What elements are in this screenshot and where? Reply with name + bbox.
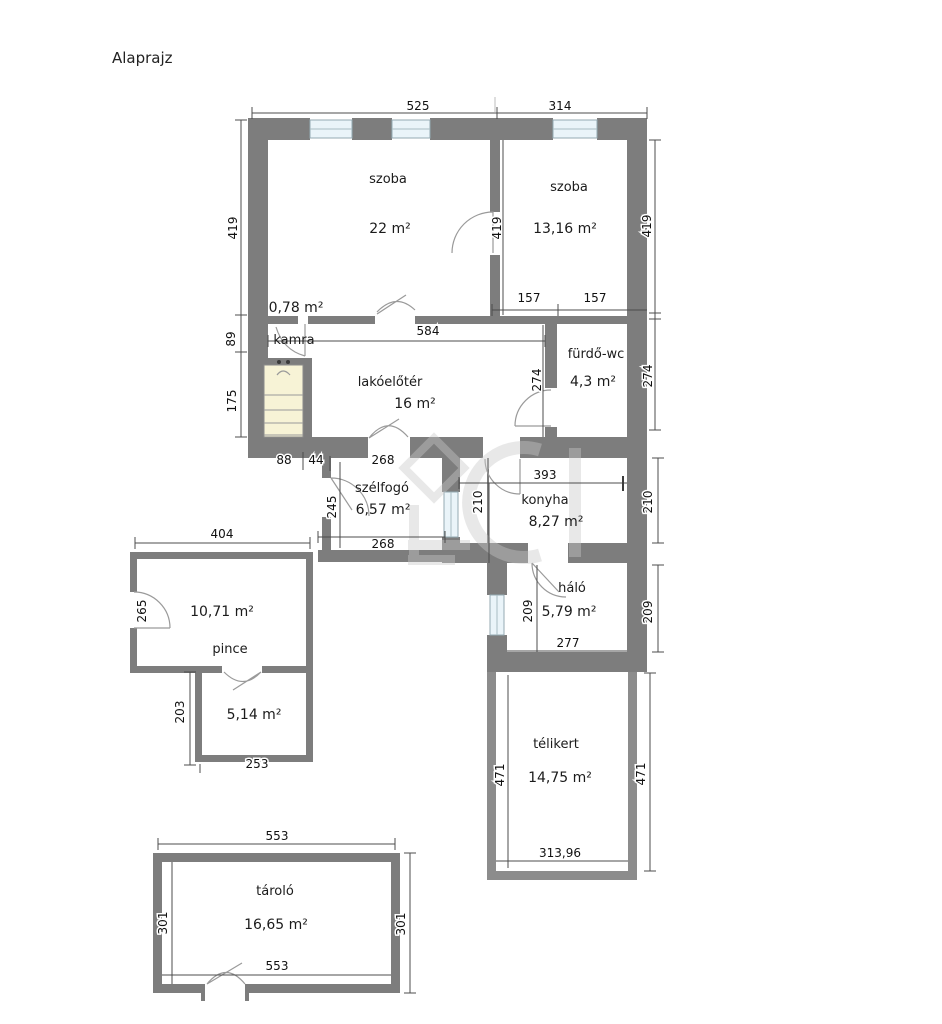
- room-area-tarolo: 16,65 m²: [244, 917, 308, 933]
- dim-label: 277: [557, 636, 580, 650]
- dimension-line: [492, 304, 647, 316]
- dim-label: 419: [490, 217, 504, 240]
- dim-label: 268: [372, 453, 395, 467]
- wall: [490, 140, 500, 212]
- wall: [430, 118, 553, 140]
- wall: [545, 427, 557, 438]
- wall: [268, 316, 298, 324]
- door-arc: [207, 963, 245, 984]
- wall: [195, 673, 202, 762]
- wall: [130, 552, 137, 592]
- dim-label: 209: [641, 601, 655, 624]
- room-area-szoba-2: 13,16 m²: [533, 221, 597, 237]
- dim-label: 404: [211, 527, 234, 541]
- dim-label: 89: [224, 331, 238, 346]
- room-label-szelfogo: szélfogó: [355, 481, 409, 496]
- wall: [153, 984, 205, 993]
- dim-label: 553: [266, 829, 289, 843]
- dim-label: 210: [471, 491, 485, 514]
- dim-label: 157: [584, 291, 607, 305]
- wall: [352, 118, 392, 140]
- wall: [627, 118, 647, 672]
- door-arc: [377, 295, 415, 314]
- room-label-szoba-1: szoba: [369, 172, 407, 187]
- door-arc: [369, 419, 408, 438]
- dim-label: 553: [266, 959, 289, 973]
- room-label-kamra: kamra: [273, 333, 314, 348]
- wall: [487, 563, 507, 595]
- dim-label: 210: [641, 491, 655, 514]
- room-area-halo: 5,79 m²: [542, 604, 597, 620]
- room-label-pince: pince: [212, 642, 247, 657]
- wall: [487, 652, 627, 672]
- room-area-pince-2: 5,14 m²: [227, 707, 282, 723]
- dim-label: 274: [530, 369, 544, 392]
- dim-label: 419: [226, 217, 240, 240]
- wall: [262, 666, 313, 673]
- dimension-line: [235, 120, 247, 437]
- stair-marker-dot: [277, 360, 281, 364]
- dim-label: 314: [549, 99, 572, 113]
- wall: [245, 984, 400, 993]
- wall: [303, 358, 312, 437]
- dim-label: 525: [407, 99, 430, 113]
- wall: [487, 871, 637, 880]
- stair-marker-dot: [286, 360, 290, 364]
- stairs: [264, 360, 303, 437]
- dim-label: 274: [641, 365, 655, 388]
- dim-label: 301: [156, 912, 170, 935]
- wall: [306, 552, 313, 762]
- dim-label: 245: [325, 496, 339, 519]
- room-area-lakoeloter: 16 m²: [394, 396, 436, 412]
- dim-label: 471: [634, 763, 648, 786]
- dim-label: 471: [493, 764, 507, 787]
- wall: [415, 316, 627, 324]
- room-area-konyha: 8,27 m²: [529, 514, 584, 530]
- stairs-body: [264, 365, 303, 437]
- dimension-line: [252, 107, 647, 119]
- dim-label: 44: [308, 453, 323, 467]
- wall: [308, 316, 375, 324]
- dim-label: 157: [518, 291, 541, 305]
- room-label-halo: háló: [558, 581, 586, 596]
- floor-plan-drawing: Alaprajz: [0, 0, 942, 1024]
- dim-label: 88: [276, 453, 291, 467]
- room-area-kamra: 0,78 m²: [269, 300, 324, 316]
- dim-label: 209: [521, 600, 535, 623]
- floor-plan-page: Alaprajz: [0, 0, 942, 1024]
- dim-label: 393: [534, 468, 557, 482]
- room-area-szelfogo: 6,57 m²: [356, 502, 411, 518]
- wall: [201, 993, 205, 1001]
- room-area-furdo-wc: 4,3 m²: [570, 374, 616, 390]
- door-arc: [224, 672, 261, 690]
- room-label-lakoeloter: lakóelőtér: [358, 375, 423, 390]
- dim-label: 419: [640, 215, 654, 238]
- page-title: Alaprajz: [112, 49, 173, 67]
- room-area-telikert: 14,75 m²: [528, 770, 592, 786]
- room-label-telikert: télikert: [533, 737, 579, 752]
- dim-label: 175: [225, 390, 239, 413]
- dim-label: 203: [173, 701, 187, 724]
- room-area-szoba-1: 22 m²: [369, 221, 411, 237]
- dim-label: 301: [394, 913, 408, 936]
- room-label-furdo-wc: fürdő-wc: [568, 347, 625, 362]
- room-area-pince: 10,71 m²: [190, 604, 254, 620]
- wall: [130, 552, 313, 559]
- wall: [130, 666, 222, 673]
- door-arc: [515, 390, 551, 426]
- dim-label: 268: [372, 537, 395, 551]
- dim-label: 584: [417, 324, 440, 338]
- room-label-szoba-2: szoba: [550, 180, 588, 195]
- walls-group: [130, 118, 647, 1001]
- dim-label: 265: [135, 600, 149, 623]
- room-label-konyha: konyha: [521, 493, 568, 508]
- door-arc: [452, 212, 493, 253]
- room-label-tarolo: tároló: [256, 884, 294, 899]
- wall: [153, 853, 400, 862]
- wall: [545, 324, 557, 388]
- wall: [245, 993, 249, 1001]
- dim-label: 253: [246, 757, 269, 771]
- dim-label: 313,96: [539, 846, 581, 860]
